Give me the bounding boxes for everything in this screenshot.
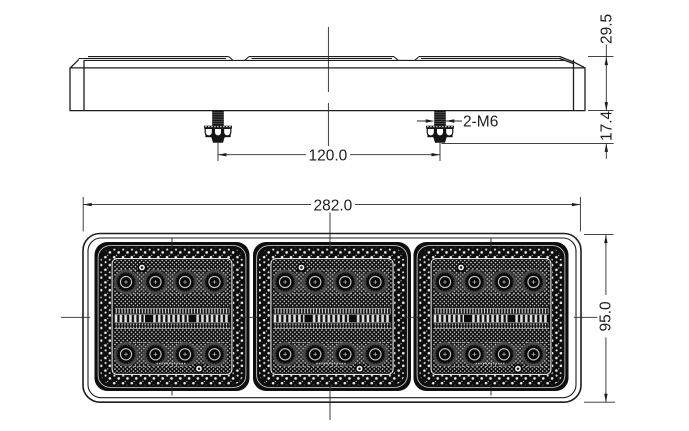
svg-text:29.5: 29.5	[599, 14, 616, 44]
svg-text:282.0: 282.0	[314, 197, 353, 214]
svg-text:120.0: 120.0	[309, 147, 348, 164]
svg-text:2-M6: 2-M6	[463, 114, 498, 131]
svg-text:17.4: 17.4	[599, 110, 616, 141]
svg-text:95.0: 95.0	[598, 301, 615, 332]
